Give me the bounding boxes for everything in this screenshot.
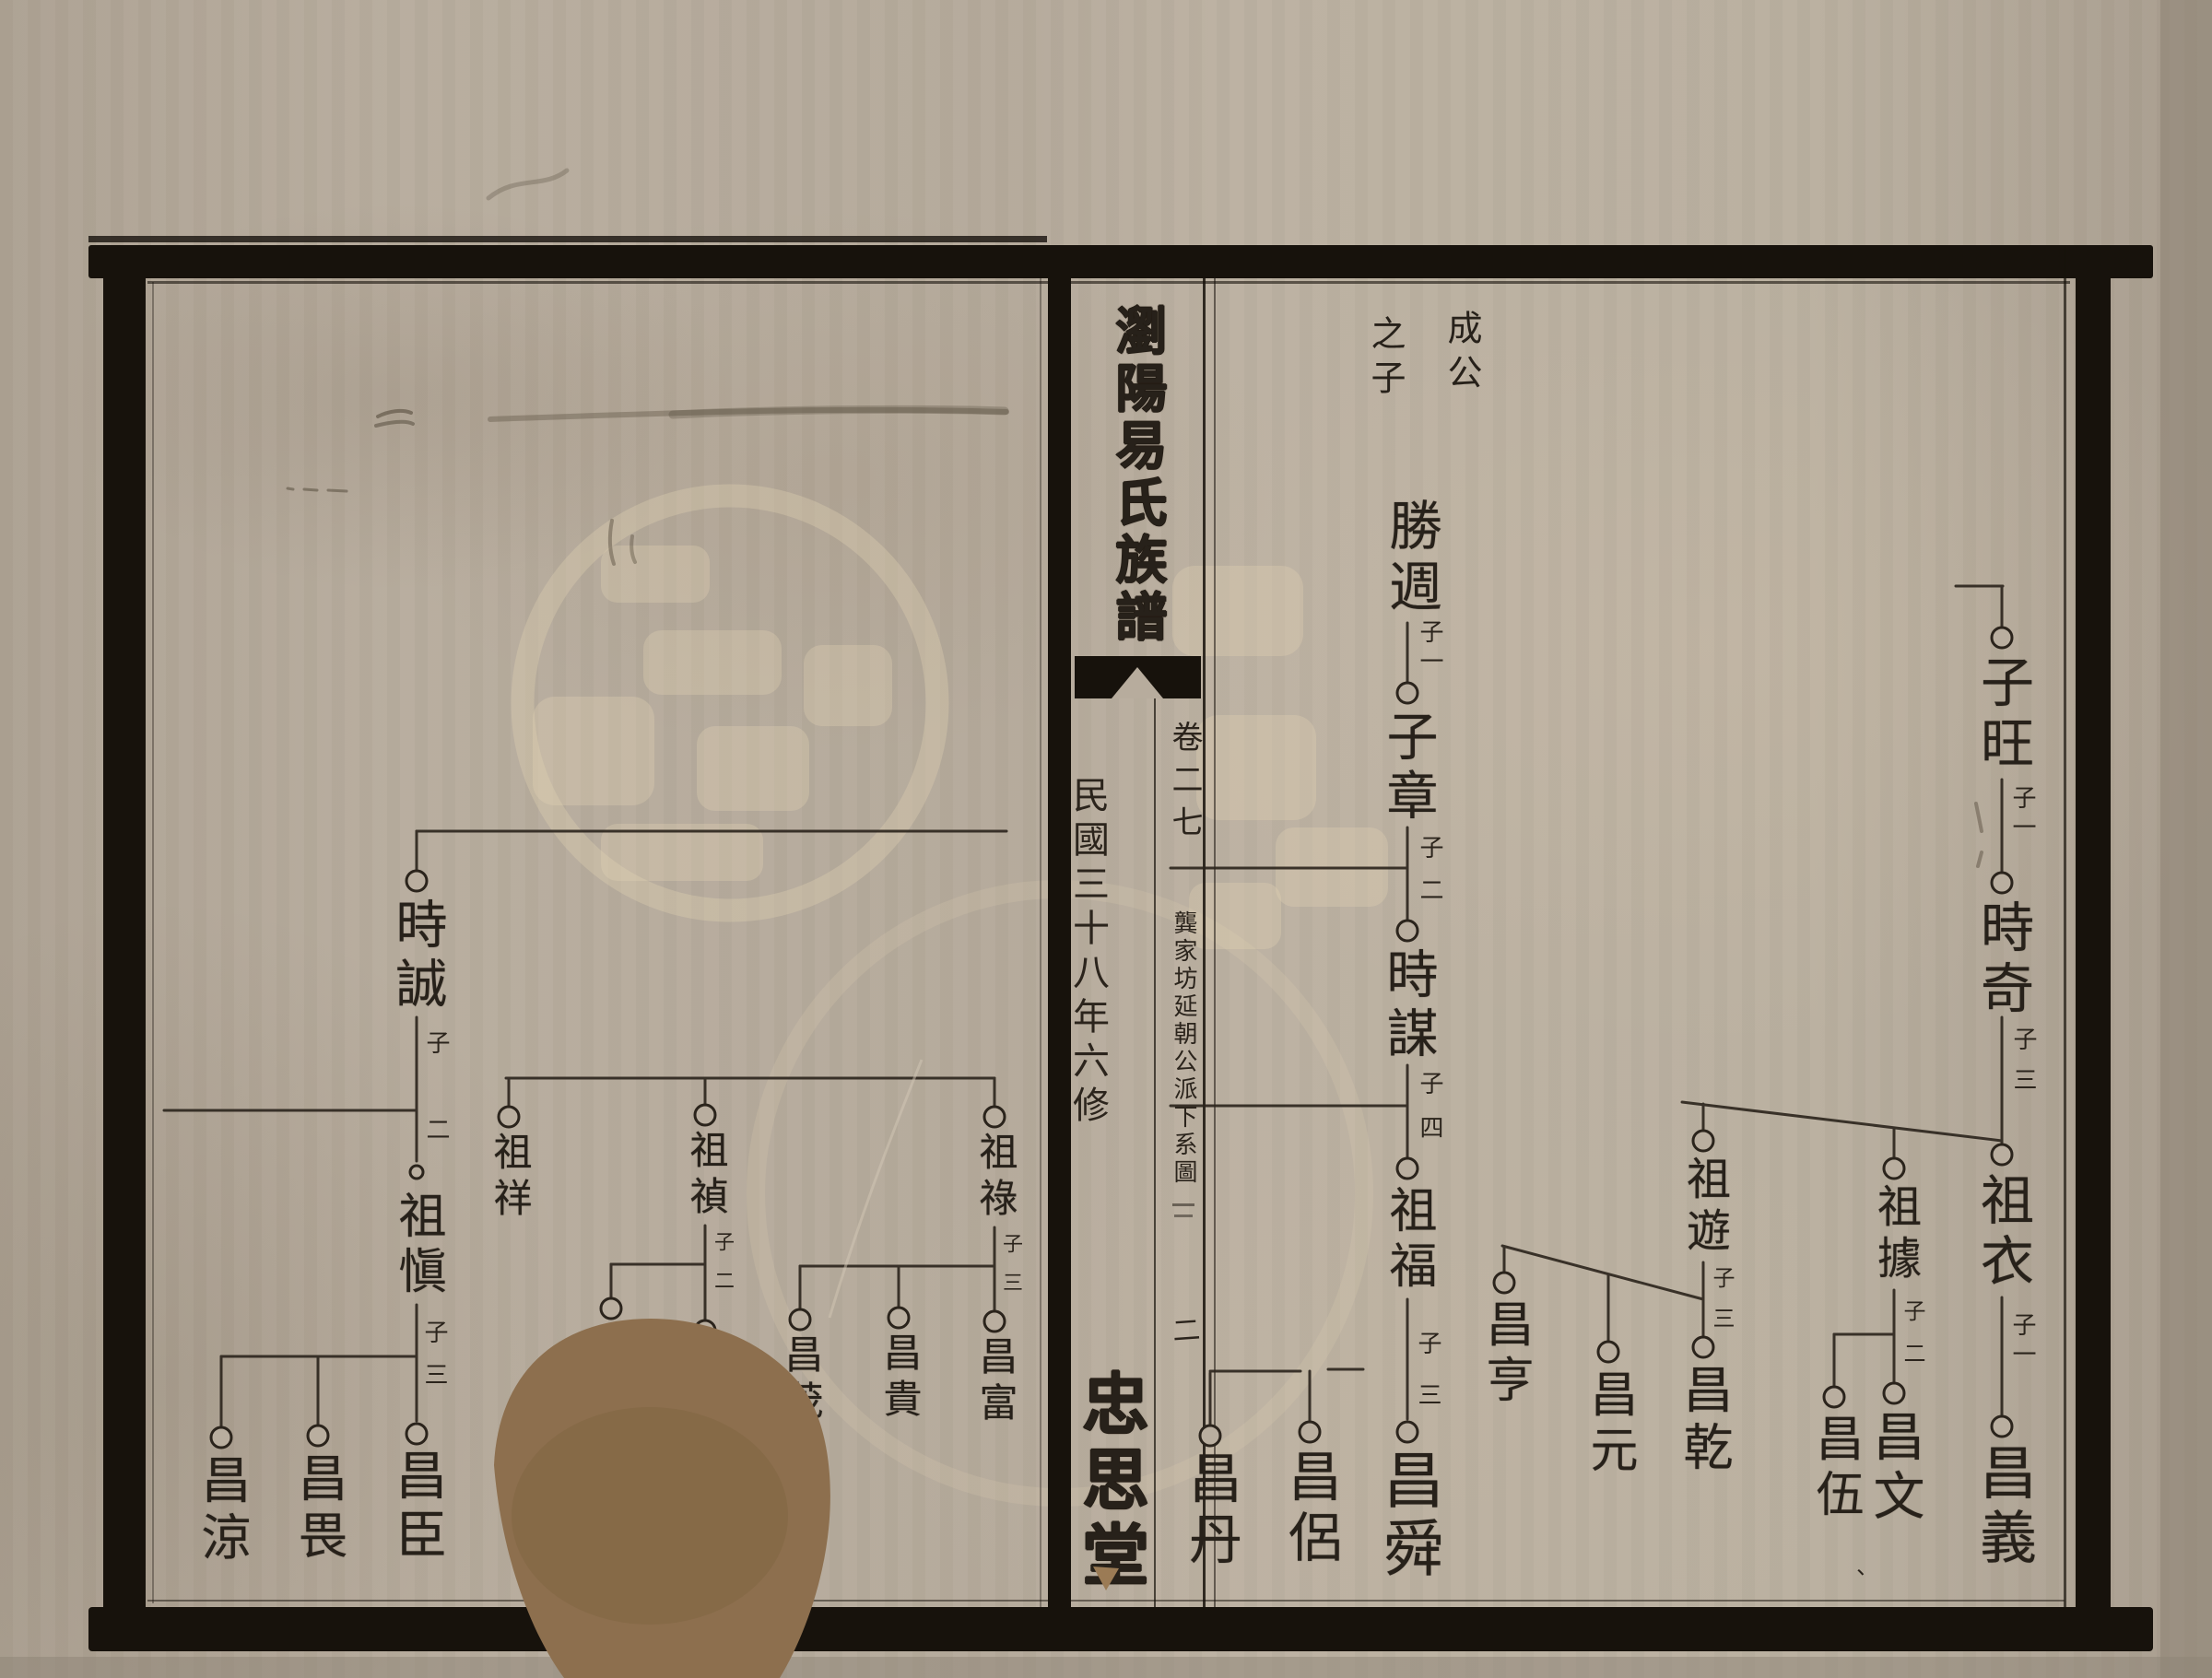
paper-stain-small	[1093, 1567, 1119, 1590]
paper-crease	[829, 1060, 922, 1318]
genealogy-scan: 瀏陽易氏族譜 卷二七 龔家坊延朝公派下系圖 民國三十八年六修 二 忠思堂 成公 …	[0, 0, 2212, 1678]
stain-core	[512, 1407, 788, 1625]
ink-smudges	[288, 170, 1982, 866]
damage-layer	[0, 0, 2212, 1678]
